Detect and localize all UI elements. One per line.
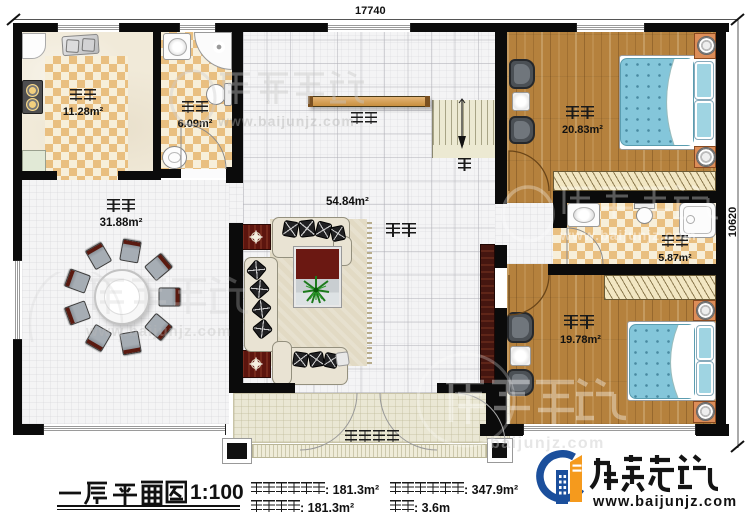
svg-text:www.baijunjz.com: www.baijunjz.com (85, 323, 231, 340)
svg-text:www.baijunjz.com: www.baijunjz.com (217, 113, 355, 129)
svg-text:www.baijunjz.com: www.baijunjz.com (592, 494, 737, 510)
svg-text:baijunjz.com: baijunjz.com (490, 435, 605, 452)
svg-text:www.baijunjz.com: www.baijunjz.com (559, 227, 697, 243)
